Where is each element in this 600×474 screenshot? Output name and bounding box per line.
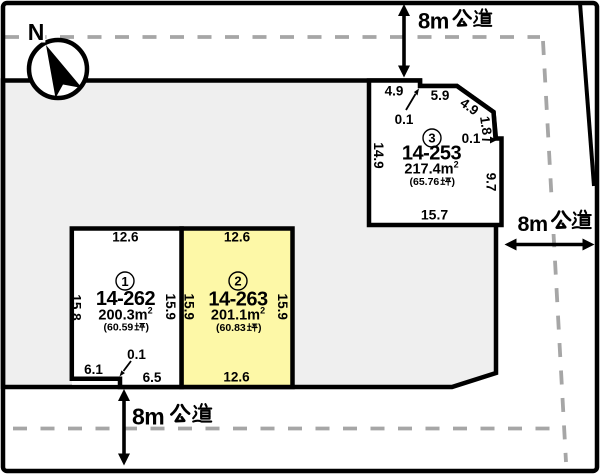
svg-text:0.1: 0.1 [127, 347, 146, 362]
svg-text:201.1m2: 201.1m2 [211, 306, 265, 324]
svg-text:6.1: 6.1 [84, 362, 103, 377]
svg-text:): ) [452, 176, 456, 188]
svg-text:(65.76: (65.76 [410, 176, 440, 188]
svg-text:1: 1 [121, 274, 128, 289]
svg-text:1.8: 1.8 [477, 115, 495, 136]
svg-text:5.9: 5.9 [431, 88, 450, 103]
svg-text:217.4m2: 217.4m2 [404, 160, 458, 178]
svg-text:15.9: 15.9 [182, 294, 197, 320]
svg-text:14.9: 14.9 [371, 142, 386, 168]
svg-text:8m: 8m [132, 404, 164, 430]
svg-text:12.6: 12.6 [224, 230, 251, 245]
svg-text:2: 2 [234, 274, 241, 289]
svg-text:8m: 8m [518, 212, 548, 236]
svg-text:8m: 8m [418, 9, 449, 34]
svg-text:): ) [258, 322, 262, 334]
svg-text:6.5: 6.5 [143, 370, 162, 385]
svg-text:(60.83: (60.83 [216, 322, 246, 334]
svg-text:15.7: 15.7 [421, 207, 448, 223]
svg-text:4.9: 4.9 [385, 84, 404, 99]
svg-text:N: N [28, 19, 45, 45]
svg-text:9.7: 9.7 [483, 173, 498, 192]
svg-text:15.9: 15.9 [275, 294, 290, 320]
svg-text:12.6: 12.6 [223, 370, 250, 385]
svg-text:12.6: 12.6 [112, 230, 139, 245]
svg-text:(60.59: (60.59 [104, 322, 134, 334]
svg-text:0.1: 0.1 [395, 112, 414, 127]
svg-text:0.1: 0.1 [462, 131, 481, 146]
svg-text:15.9: 15.9 [163, 294, 178, 320]
svg-text:): ) [146, 322, 150, 334]
svg-text:15.8: 15.8 [68, 294, 83, 321]
